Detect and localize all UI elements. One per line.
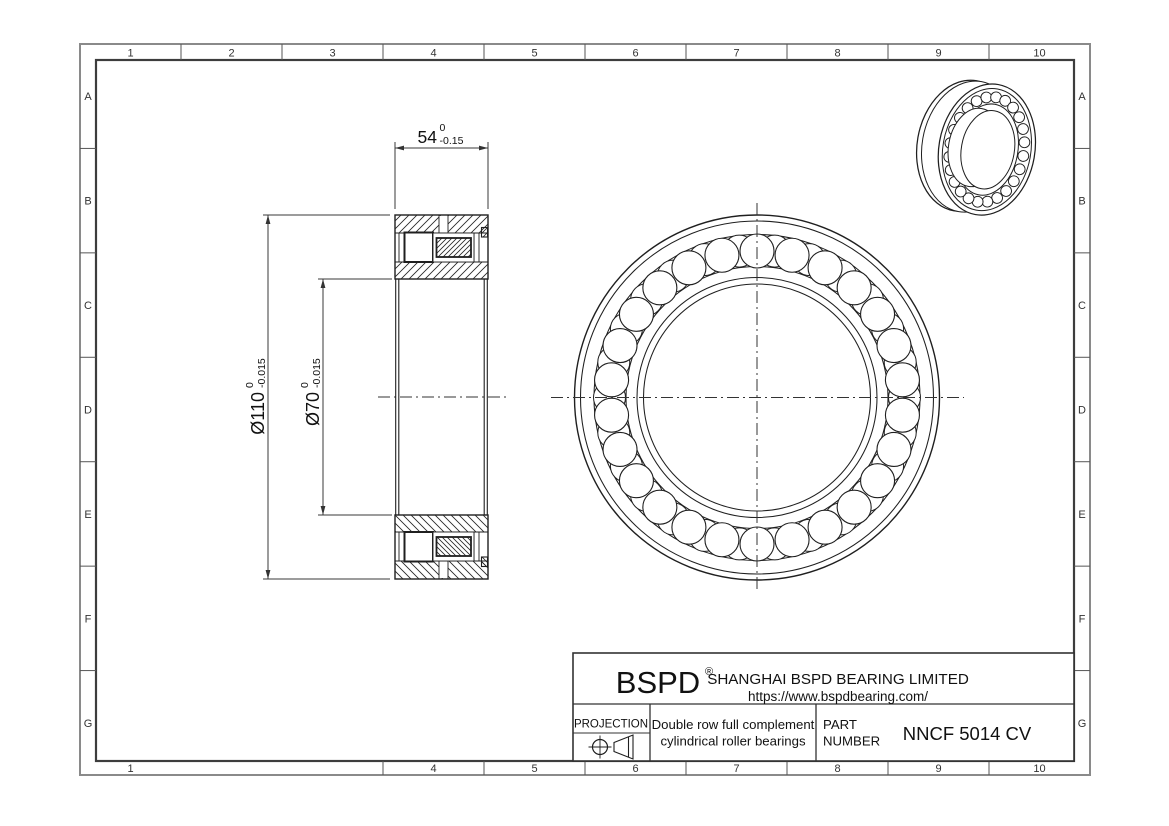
company-logo: BSPD <box>616 665 700 700</box>
grid-column-label: 1 <box>127 48 133 60</box>
grid-column-label: 4 <box>430 763 436 775</box>
grid-column-label: 2 <box>228 48 234 60</box>
grid-row-label: F <box>85 613 92 625</box>
roller-front-row <box>705 238 739 272</box>
front-view <box>551 203 964 593</box>
roller-front-row <box>775 238 809 272</box>
roller-front-row <box>885 398 919 432</box>
roller-front-row <box>837 490 871 524</box>
roller-front-row <box>619 297 653 331</box>
dim-od-value: Ø110 <box>248 392 268 435</box>
roller-front-row <box>643 490 677 524</box>
drawing-canvas: 12345678910145678910ABCDEFGABCDEFG <box>0 0 1169 826</box>
grid-column-label: 5 <box>531 48 537 60</box>
roller-front-row <box>877 329 911 363</box>
dim-width-tol-upper: 0 <box>440 122 446 134</box>
arrowhead <box>321 506 326 515</box>
grid-row-label: E <box>1078 509 1085 521</box>
grid-row-label: G <box>1078 718 1087 730</box>
grid-column-label: 5 <box>531 763 537 775</box>
roller-front-row <box>861 464 895 498</box>
grid-row-label: F <box>1079 613 1086 625</box>
bearing-description-line2: cylindrical roller bearings <box>660 734 806 749</box>
roller-front-row <box>705 523 739 557</box>
roller-front-row <box>861 297 895 331</box>
grid-row-label: D <box>1078 405 1086 417</box>
roller-front-row <box>808 510 842 544</box>
grid-row-label: C <box>1078 300 1086 312</box>
roller-front-row <box>595 363 629 397</box>
grid-row-label: C <box>84 300 92 312</box>
inner-ring-section <box>395 262 488 279</box>
grid-row-label: A <box>84 91 92 103</box>
roller-front-row <box>405 233 434 263</box>
inner-ring-section <box>395 515 488 532</box>
arrowhead <box>395 146 404 151</box>
part-label-line2: NUMBER <box>823 734 880 749</box>
part-label-line1: PART <box>823 717 857 732</box>
grid-column-label: 4 <box>430 48 436 60</box>
roller-front-row <box>405 532 434 562</box>
roller-front-row <box>603 432 637 466</box>
projection-label: PROJECTION <box>574 719 648 731</box>
roller-front-row <box>672 251 706 285</box>
snap-ring <box>482 228 488 238</box>
bearing-description-line1: Double row full complement <box>652 717 815 732</box>
grid-row-label: A <box>1078 91 1086 103</box>
arrowhead <box>479 146 488 151</box>
grid-row-label: G <box>84 718 93 730</box>
roller-front-row <box>877 432 911 466</box>
grid-column-label: 1 <box>127 763 133 775</box>
dim-bore-tol-upper: 0 <box>299 382 311 388</box>
dim-bore-value: Ø70 <box>303 392 323 426</box>
grid-column-label: 8 <box>834 763 840 775</box>
arrowhead <box>266 570 271 579</box>
isometric-view <box>906 72 1045 222</box>
grid-column-label: 6 <box>632 763 638 775</box>
dim-width-tol-lower: -0.15 <box>440 135 464 147</box>
dim-bore-tol-lower: -0.015 <box>311 358 323 388</box>
grid-column-label: 7 <box>733 48 739 60</box>
title-block: BSPD ® SHANGHAI BSPD BEARING LIMITED htt… <box>573 653 1074 761</box>
company-website: https://www.bspdbearing.com/ <box>748 689 928 704</box>
grid-column-label: 6 <box>632 48 638 60</box>
grid-column-label: 10 <box>1033 48 1045 60</box>
dim-width-value: 54 <box>418 127 438 147</box>
roller-front-row <box>619 464 653 498</box>
grid-column-label: 10 <box>1033 763 1045 775</box>
dim-od-tol-upper: 0 <box>244 382 256 388</box>
grid-column-label: 8 <box>834 48 840 60</box>
dimension-width-54: 54 0 -0.15 <box>395 122 488 209</box>
section-bottom-half <box>395 515 488 579</box>
grid-column-label: 9 <box>935 763 941 775</box>
roller-front-row <box>672 510 706 544</box>
grid-row-label: D <box>84 405 92 417</box>
part-number-value: NNCF 5014 CV <box>903 723 1032 744</box>
roller-back-row-sectioned <box>437 238 472 257</box>
grid-row-label: E <box>84 509 91 521</box>
roller-front-row <box>603 329 637 363</box>
arrowhead <box>266 215 271 224</box>
roller-front-row <box>643 271 677 305</box>
roller-front-row <box>595 398 629 432</box>
roller-front-row <box>808 251 842 285</box>
grid-column-label: 7 <box>733 763 739 775</box>
engineering-drawing-page: 12345678910145678910ABCDEFGABCDEFG <box>0 0 1169 826</box>
grid-row-label: B <box>84 196 91 208</box>
roller-back-row-sectioned <box>437 537 472 556</box>
arrowhead <box>321 279 326 288</box>
grid-column-label: 3 <box>329 48 335 60</box>
snap-ring <box>482 557 488 567</box>
company-name: SHANGHAI BSPD BEARING LIMITED <box>707 671 969 688</box>
section-view <box>378 215 507 579</box>
roller-front-row <box>885 363 919 397</box>
grid-row-label: B <box>1078 196 1085 208</box>
roller-front-row <box>775 523 809 557</box>
roller-front-row <box>837 271 871 305</box>
dim-od-tol-lower: -0.015 <box>256 358 268 388</box>
section-top-half <box>395 215 488 279</box>
grid-column-label: 9 <box>935 48 941 60</box>
